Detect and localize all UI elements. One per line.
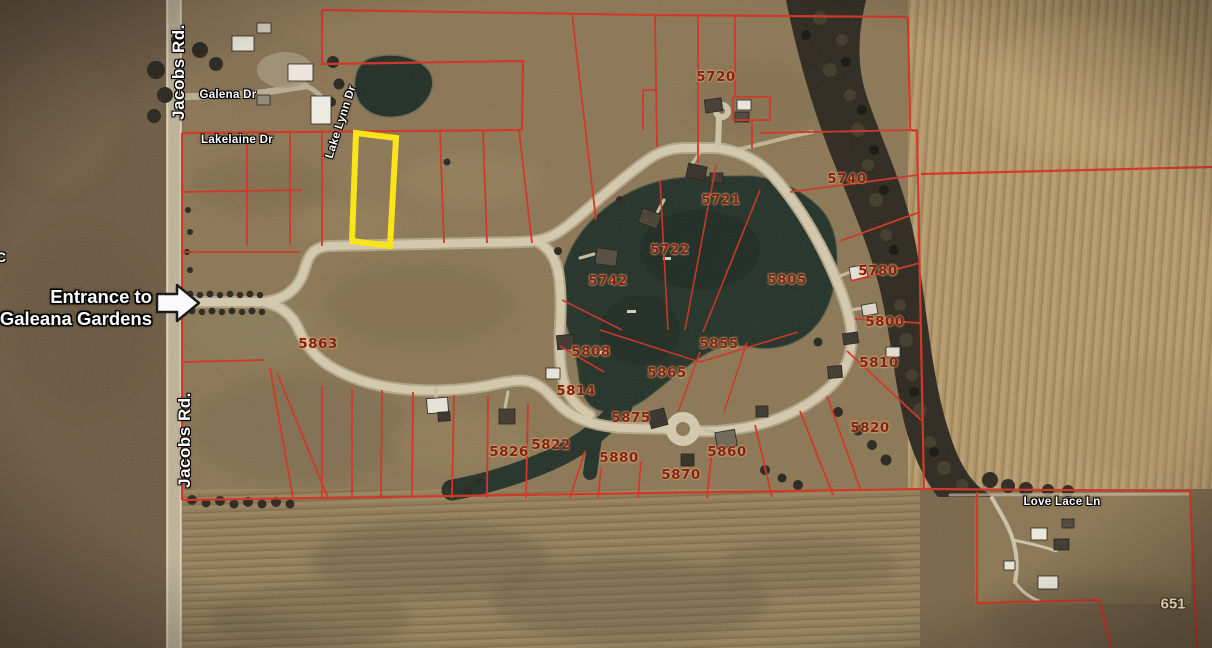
street-label-jacobs-rd-bottom: Jacobs Rd. [175, 392, 195, 488]
entrance-annotation-line1: Entrance to [50, 286, 152, 307]
parcel-label-651: 651 [1160, 596, 1185, 613]
lot-number-label: 5870 [661, 467, 701, 483]
lot-number-label: 5740 [827, 171, 867, 187]
entrance-annotation: Entrance to Galeana Gardens [0, 286, 152, 330]
street-label-jacobs-rd-top: Jacobs Rd. [169, 24, 189, 120]
entrance-annotation-line2: Galeana Gardens [0, 308, 152, 329]
lot-number-label: 5860 [707, 444, 747, 460]
lot-number-label: 5826 [489, 444, 529, 460]
street-label-galena-dr: Galena Dr [199, 89, 256, 101]
edge-label-c: C [0, 249, 6, 265]
street-label-love-lace-ln: Love Lace Ln [1023, 496, 1100, 508]
lot-number-label: 5721 [701, 192, 741, 208]
lot-number-label: 5810 [859, 355, 899, 371]
lot-number-label: 5880 [599, 450, 639, 466]
lot-number-label: 5863 [298, 336, 338, 352]
aerial-map: Jacobs Rd. Jacobs Rd. Galena Dr Lakelain… [0, 0, 1212, 648]
lot-number-label: 5720 [696, 69, 736, 85]
lot-number-label: 5722 [650, 242, 690, 258]
lot-number-label: 5742 [588, 273, 628, 289]
lot-number-label: 5814 [556, 383, 596, 399]
lot-number-label: 5805 [767, 272, 807, 288]
lot-number-label: 5875 [611, 410, 651, 426]
lot-number-label: 5808 [571, 344, 611, 360]
lot-number-label: 5820 [850, 420, 890, 436]
street-label-lakelaine-dr: Lakelaine Dr [201, 134, 273, 146]
lot-number-label: 5800 [865, 314, 905, 330]
lot-number-label: 5855 [699, 336, 739, 352]
lot-number-label: 5822 [531, 437, 571, 453]
lot-number-label: 5780 [858, 263, 898, 279]
lot-number-label: 5865 [647, 365, 687, 381]
